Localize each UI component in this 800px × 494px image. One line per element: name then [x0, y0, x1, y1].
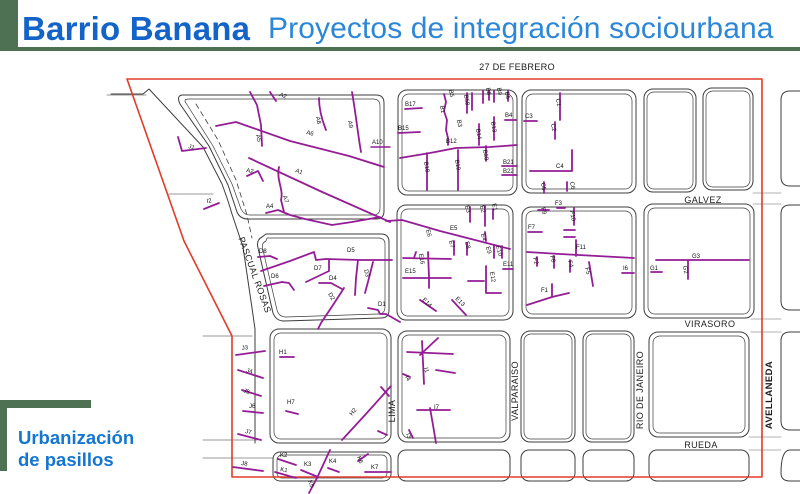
svg-text:D6: D6	[271, 274, 279, 280]
svg-text:E8: E8	[463, 241, 471, 250]
svg-text:I3: I3	[404, 433, 412, 440]
svg-text:E5: E5	[450, 226, 458, 232]
svg-text:F5: F5	[583, 267, 591, 276]
svg-text:PASCUAL ROSAS: PASCUAL ROSAS	[236, 236, 273, 315]
svg-text:J6: J6	[249, 404, 256, 410]
svg-text:B4: B4	[505, 113, 513, 119]
svg-text:E1: E1	[490, 203, 498, 212]
svg-text:F11: F11	[576, 245, 587, 251]
svg-text:C4: C4	[556, 164, 564, 170]
svg-text:D1: D1	[378, 302, 386, 308]
svg-text:B21: B21	[503, 160, 514, 166]
svg-text:J3: J3	[241, 345, 249, 352]
svg-text:VIRASORO: VIRASORO	[685, 319, 736, 329]
svg-text:RUEDA: RUEDA	[684, 440, 718, 450]
svg-text:B3: B3	[455, 119, 462, 128]
svg-text:A1: A1	[294, 168, 304, 176]
svg-text:LIMA: LIMA	[387, 400, 397, 423]
svg-text:VALPARAISO: VALPARAISO	[510, 361, 520, 421]
svg-text:G1: G1	[650, 266, 659, 272]
svg-text:B8: B8	[484, 87, 491, 96]
svg-text:B22: B22	[503, 169, 514, 175]
svg-text:D8: D8	[259, 249, 267, 255]
svg-text:AVELLANEDA: AVELLANEDA	[764, 361, 775, 429]
svg-text:27 DE FEBRERO: 27 DE FEBRERO	[479, 62, 555, 72]
svg-text:G3: G3	[692, 254, 701, 260]
svg-text:A6: A6	[306, 130, 315, 138]
svg-text:H7: H7	[287, 400, 295, 406]
svg-text:F4: F4	[566, 260, 574, 269]
svg-text:D7: D7	[314, 266, 322, 272]
svg-text:K7: K7	[371, 465, 379, 471]
svg-text:A5: A5	[254, 134, 262, 143]
svg-text:A2: A2	[278, 92, 288, 100]
svg-text:K6: K6	[355, 456, 363, 466]
svg-text:C5: C5	[539, 182, 546, 191]
svg-text:J8: J8	[241, 461, 249, 468]
svg-text:F10: F10	[568, 210, 576, 222]
svg-text:I4: I4	[403, 375, 411, 383]
svg-text:E12: E12	[488, 271, 496, 283]
svg-text:A2: A2	[246, 168, 255, 175]
svg-text:B5: B5	[447, 89, 454, 98]
svg-text:A9: A9	[346, 120, 353, 129]
svg-text:H1: H1	[279, 350, 287, 356]
svg-text:K3: K3	[304, 462, 312, 468]
svg-text:E11: E11	[503, 262, 514, 268]
svg-text:B15: B15	[398, 126, 409, 132]
svg-text:GALVEZ: GALVEZ	[684, 195, 721, 205]
svg-text:B19: B19	[453, 159, 461, 171]
svg-text:B12: B12	[446, 139, 457, 145]
svg-text:F3: F3	[555, 201, 563, 207]
svg-text:B18: B18	[422, 161, 430, 173]
svg-text:D2: D2	[326, 292, 335, 302]
svg-text:I7: I7	[434, 405, 440, 411]
svg-text:B58: B58	[462, 94, 470, 106]
svg-text:J5: J5	[242, 388, 251, 396]
svg-text:A10: A10	[372, 140, 383, 146]
svg-text:E15: E15	[405, 269, 416, 275]
svg-text:D5: D5	[347, 248, 355, 254]
svg-text:E13: E13	[454, 296, 466, 308]
svg-text:E9: E9	[484, 246, 492, 255]
svg-text:B13: B13	[489, 121, 497, 133]
svg-text:B14: B14	[474, 128, 482, 140]
svg-text:D4: D4	[329, 276, 337, 282]
svg-text:F7: F7	[528, 225, 536, 231]
svg-text:K2: K2	[280, 453, 288, 459]
svg-text:RIO DE JANEIRO: RIO DE JANEIRO	[635, 351, 645, 429]
svg-text:B20: B20	[481, 149, 489, 161]
svg-text:K5: K5	[306, 480, 314, 490]
svg-text:I6: I6	[623, 266, 629, 272]
svg-text:C3: C3	[525, 114, 533, 120]
svg-text:F1: F1	[541, 288, 549, 294]
svg-text:K4: K4	[329, 459, 337, 465]
svg-text:A8: A8	[314, 116, 321, 125]
svg-text:E16: E16	[417, 253, 425, 265]
svg-text:H2: H2	[349, 407, 359, 417]
svg-text:B9: B9	[495, 87, 502, 96]
svg-text:A4: A4	[266, 204, 274, 210]
svg-text:I2: I2	[206, 198, 213, 205]
svg-text:B17: B17	[405, 102, 416, 108]
svg-text:E6: E6	[424, 229, 432, 238]
svg-text:F9: F9	[539, 207, 547, 216]
svg-text:B6: B6	[503, 91, 510, 100]
